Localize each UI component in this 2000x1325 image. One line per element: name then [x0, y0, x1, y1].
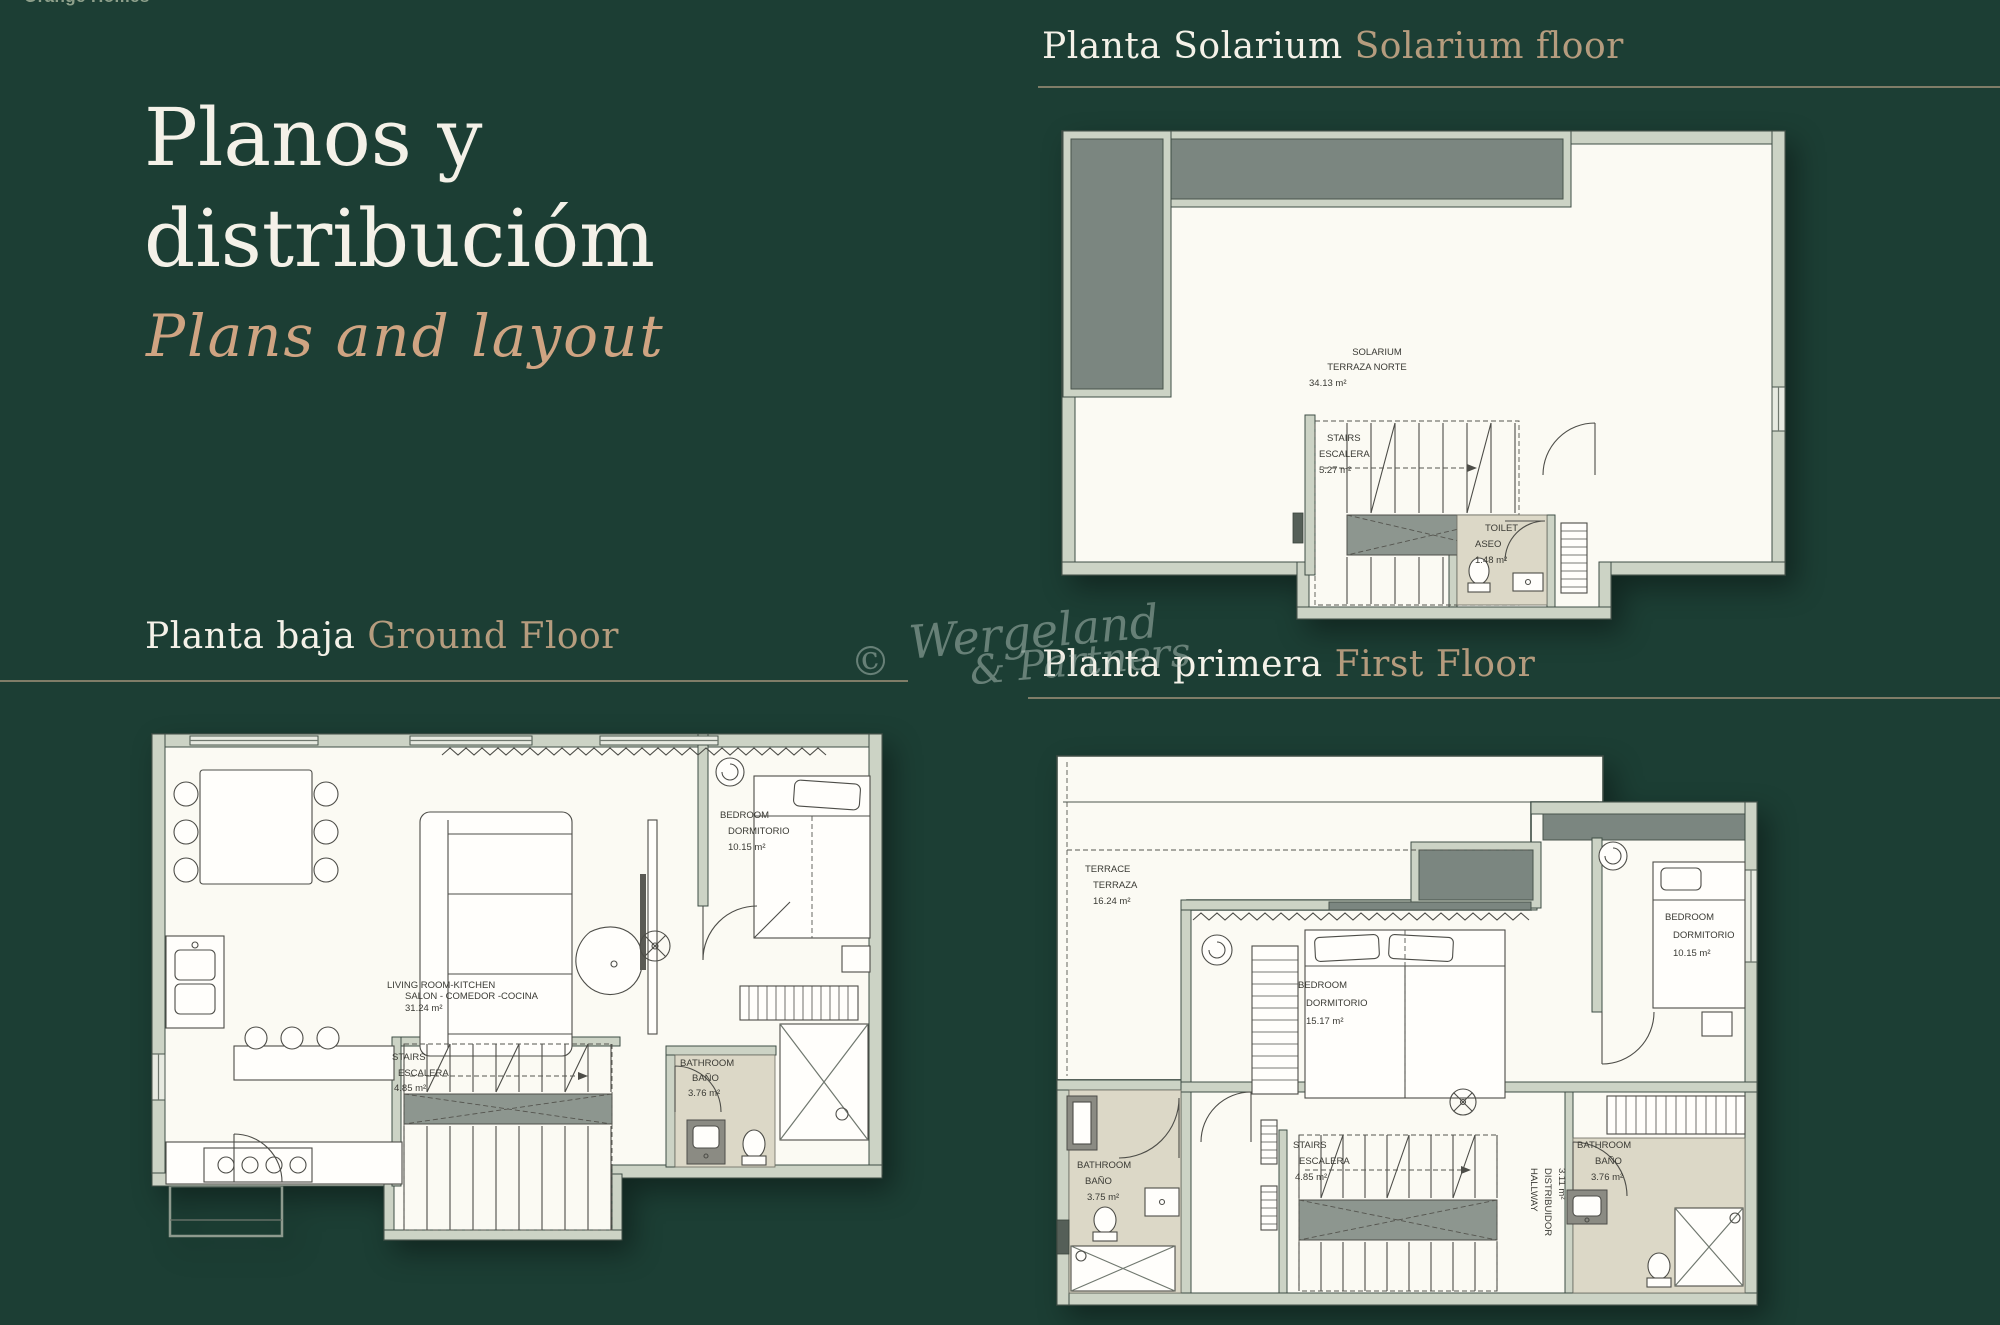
page-title-line2: distribucióm [144, 189, 655, 290]
room-label-line: ASEO [1475, 539, 1501, 550]
porch [170, 1186, 282, 1236]
page-title: Planos y distribucióm [144, 88, 655, 290]
ground-floor-plan: LIVING ROOM-KITCHEN SALON - COMEDOR -COC… [142, 724, 905, 1248]
room-label-line: 3.76 m² [1591, 1172, 1623, 1183]
first-floor-plan: TERRACE TERRAZA 16.24 m² BEDROOM DORMITO… [1047, 750, 1797, 1320]
partial-brand-text: Orange Homes [24, 0, 150, 7]
heading-solarium-en: Solarium floor [1355, 26, 1624, 67]
room-label-line: 34.13 m² [1309, 378, 1347, 389]
shower [780, 1024, 868, 1140]
rule-solarium [1038, 86, 2000, 88]
left-bathroom [1067, 1090, 1181, 1293]
page-subtitle: Plans and layout [146, 302, 665, 370]
room-label-line: SALON - COMEDOR -COCINA [405, 991, 539, 1002]
room-label-line: BAÑO [1085, 1176, 1112, 1187]
room-label-line: ESCALERA [1319, 449, 1370, 460]
room-label-line: ESCALERA [398, 1068, 449, 1079]
heading-first-en: First Floor [1335, 644, 1536, 685]
room-label-line: DISTRIBUIDOR [1542, 1168, 1553, 1236]
rule-ground [0, 680, 908, 682]
room-label-line: 10.15 m² [728, 842, 766, 853]
wardrobe [740, 986, 858, 1020]
room-label-line: STAIRS [392, 1052, 426, 1063]
page-canvas: Orange Homes Planos y distribucióm Plans… [0, 0, 2000, 1325]
room-label-line: ESCALERA [1299, 1156, 1350, 1167]
room-label-line: 15.17 m² [1306, 1016, 1344, 1027]
room-label-line: 10.15 m² [1673, 948, 1711, 959]
room-label-line: 31.24 m² [405, 1003, 443, 1014]
bathroom [675, 1055, 775, 1167]
page-title-line1: Planos y [144, 88, 655, 189]
sofa [420, 812, 572, 1056]
heading-solarium-es: Planta Solarium [1042, 26, 1343, 67]
heading-ground-en: Ground Floor [367, 616, 619, 657]
room-label-line: 4.85 m² [394, 1083, 426, 1094]
heading-ground-es: Planta baja [145, 616, 355, 657]
room-label-line: 3.75 m² [1087, 1192, 1119, 1203]
room-label-line: BATHROOM [680, 1058, 734, 1069]
solarium-floor-plan: SOLARIUM TERRAZA NORTE 34.13 m² STAIRS E… [1047, 123, 1797, 623]
copyright-icon: © [849, 637, 893, 686]
room-label-line: 5.27 m² [1319, 465, 1351, 476]
heading-ground: Planta bajaGround Floor [145, 616, 619, 657]
room-label-line: BATHROOM [1077, 1160, 1131, 1171]
room-label-line: STAIRS [1293, 1140, 1327, 1151]
room-label-line: TERRACE [1085, 864, 1130, 875]
room-label-line: DORMITORIO [1306, 998, 1368, 1009]
room-label-line: HALLWAY [1528, 1168, 1539, 1212]
room-label-line: LIVING ROOM-KITCHEN [387, 980, 495, 991]
room-label-line: SOLARIUM [1352, 347, 1402, 358]
room-label-line: DORMITORIO [728, 826, 790, 837]
room-label-line: BATHROOM [1577, 1140, 1631, 1151]
room-label-line: 3.76 m² [688, 1088, 720, 1099]
room-label-line: BEDROOM [720, 810, 769, 821]
room-label-line: BEDROOM [1665, 912, 1714, 923]
room-label-line: 16.24 m² [1093, 896, 1131, 907]
room-label-line: TOILET [1485, 523, 1518, 534]
vent [1057, 1220, 1069, 1254]
coffee-table [576, 927, 643, 995]
room-label-line: BEDROOM [1298, 980, 1347, 991]
heading-solarium: Planta SolariumSolarium floor [1042, 26, 1624, 67]
room-label-line: 4.85 m² [1295, 1172, 1327, 1183]
room-label-line: DORMITORIO [1673, 930, 1735, 941]
room-label-line: 3.11 m² [1556, 1168, 1567, 1200]
room-label-line: TERRAZA NORTE [1327, 362, 1407, 373]
room-label-line: STAIRS [1327, 433, 1361, 444]
room-label-line: BAÑO [1595, 1156, 1622, 1167]
vent [1293, 513, 1303, 543]
rule-first [1028, 697, 2000, 699]
room-label-line: 1.48 m² [1475, 555, 1507, 566]
room-label-line: TERRAZA [1093, 880, 1138, 891]
room-label-line: BAÑO [692, 1073, 719, 1084]
